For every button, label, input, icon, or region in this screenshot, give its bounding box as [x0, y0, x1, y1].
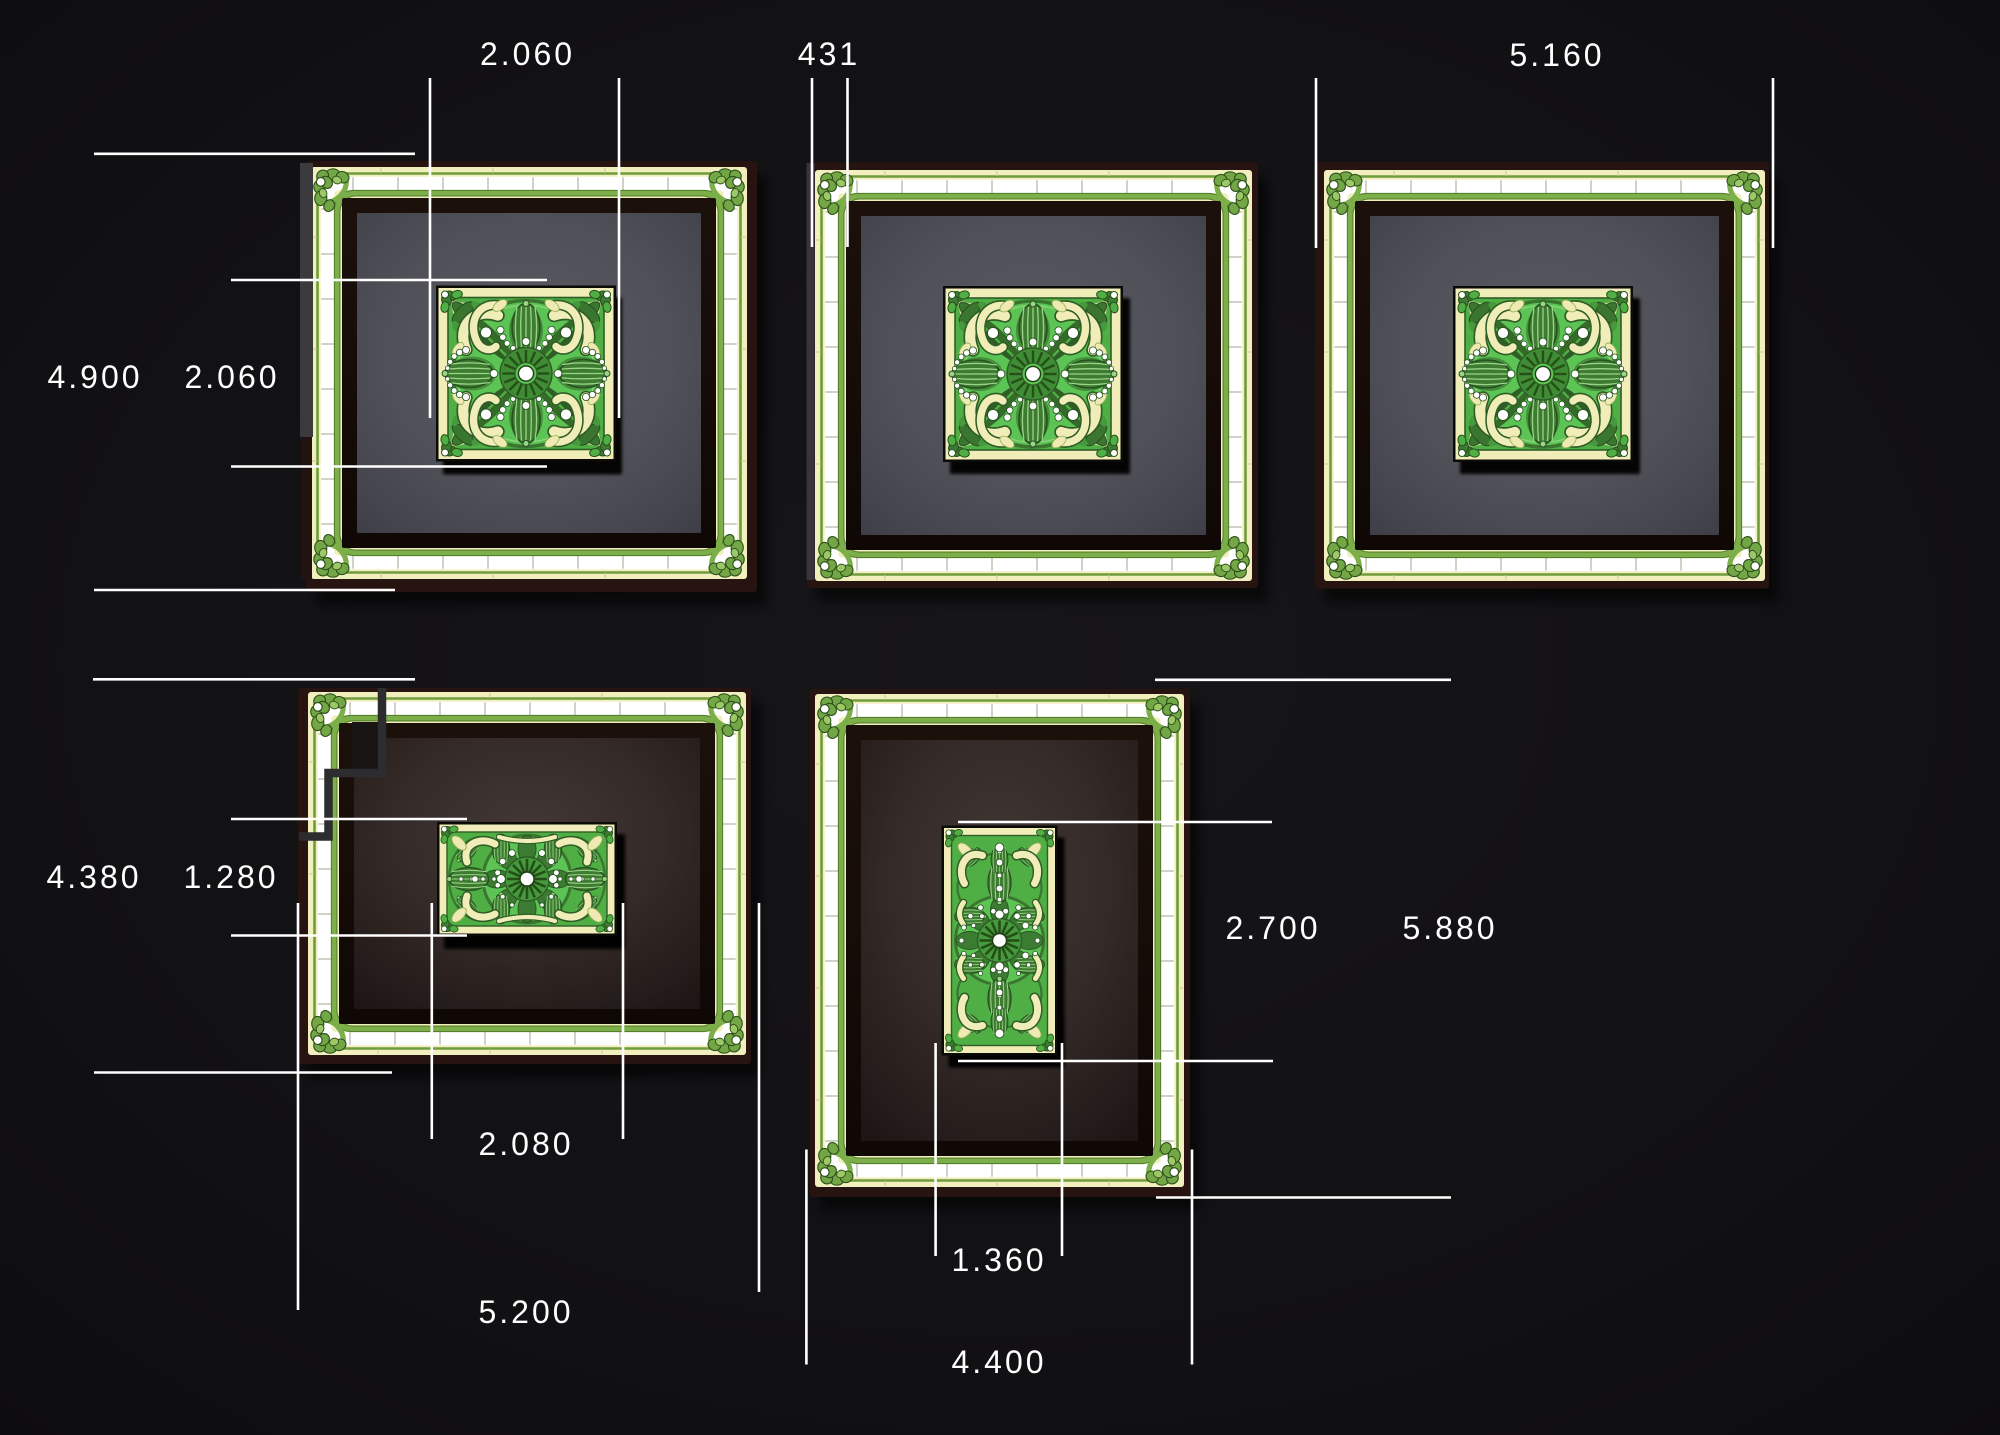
svg-text:1.360: 1.360 [951, 1242, 1046, 1278]
svg-text:2.700: 2.700 [1225, 910, 1320, 946]
svg-text:5.880: 5.880 [1402, 910, 1497, 946]
svg-text:2.060: 2.060 [480, 36, 575, 72]
svg-text:4.400: 4.400 [951, 1344, 1046, 1380]
svg-text:1.280: 1.280 [183, 859, 278, 895]
svg-text:5.200: 5.200 [478, 1294, 573, 1330]
svg-text:2.080: 2.080 [478, 1126, 573, 1162]
svg-text:4.380: 4.380 [46, 859, 141, 895]
svg-text:431: 431 [798, 36, 860, 72]
svg-text:2.060: 2.060 [184, 359, 279, 395]
svg-text:5.160: 5.160 [1509, 37, 1604, 73]
svg-text:4.900: 4.900 [47, 359, 142, 395]
